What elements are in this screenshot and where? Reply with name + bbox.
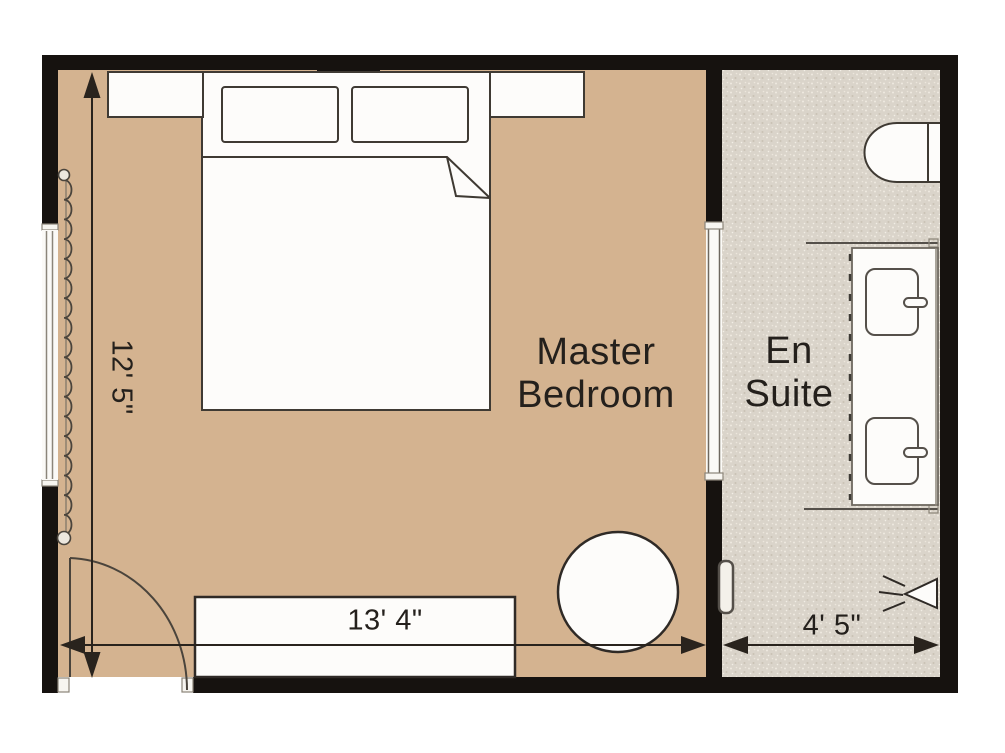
- wall-right: [940, 55, 958, 693]
- ensuite-width-dimension: 4' 5": [803, 610, 862, 643]
- wall-bottom: [193, 677, 958, 693]
- wall-top: [42, 55, 958, 70]
- pillow-icon: [222, 87, 338, 142]
- ensuite-label: En Suite: [744, 330, 833, 416]
- bedroom-height-dimension: 12' 5": [105, 339, 138, 414]
- wall-left-upper: [42, 55, 58, 230]
- nightstand-icon: [108, 72, 203, 117]
- wall-divider-upper: [706, 55, 722, 228]
- master-bedroom-label-line1: Master: [517, 331, 675, 374]
- toilet-icon: [865, 123, 941, 182]
- divider-opening: [706, 228, 722, 475]
- wall-handle-icon: [719, 561, 733, 613]
- wall-left-lower: [42, 480, 58, 693]
- faucet-icon: [904, 298, 927, 307]
- window-icon: [42, 230, 58, 480]
- pillow-icon: [352, 87, 468, 142]
- master-bedroom-label: Master Bedroom: [517, 331, 675, 417]
- double-bed-icon: [202, 72, 490, 410]
- ensuite-label-line2: Suite: [744, 373, 833, 416]
- ensuite-label-line1: En: [744, 330, 833, 373]
- faucet-icon: [904, 448, 927, 457]
- nightstand-icon: [490, 72, 584, 117]
- floor-plan: Master Bedroom En Suite 12' 5" 13' 4" 4'…: [0, 0, 1005, 753]
- master-bedroom-label-line2: Bedroom: [517, 374, 675, 417]
- bedroom-width-dimension: 13' 4": [347, 605, 422, 638]
- round-chair-icon: [558, 532, 678, 652]
